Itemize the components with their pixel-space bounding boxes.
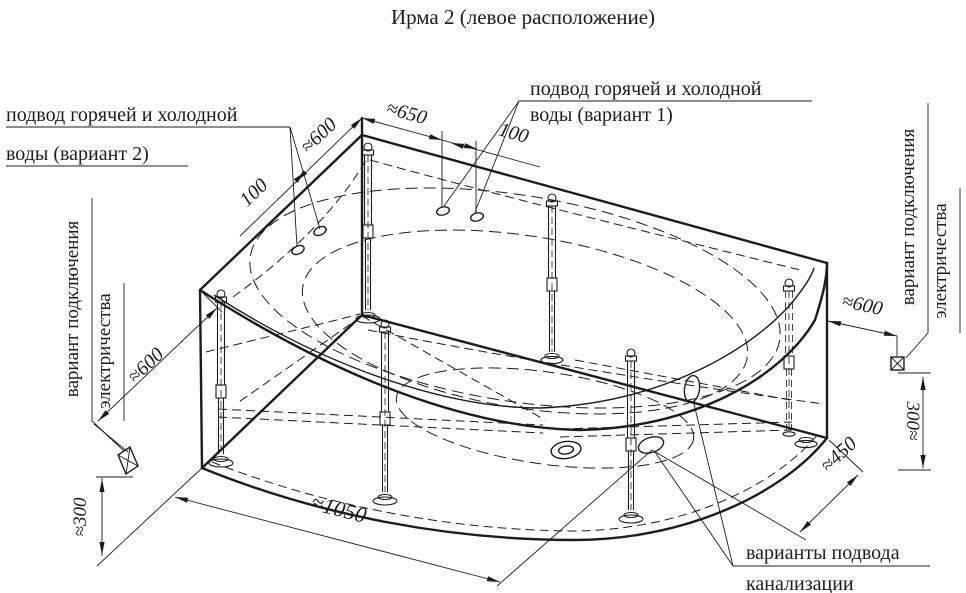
bathtub-technical-drawing: Ирма 2 (левое расположение) подвод горяч… xyxy=(0,0,966,593)
label-sewer-line1: варианты подвода xyxy=(746,542,900,564)
leg xyxy=(373,320,397,505)
dim-right-electric-offset: ≈600 xyxy=(840,290,885,320)
dim-left-holes-spacing: 100 xyxy=(235,174,272,211)
label-electric-left-line1: вариант подключения xyxy=(62,220,83,397)
label-water-variant1-line1: подвод горячей и холодной xyxy=(530,78,762,100)
dim-sewer-offset: ≈450 xyxy=(816,433,861,477)
dim-right-holes-offset: ≈650 xyxy=(384,97,429,129)
label-electric-right-line1: вариант подключения xyxy=(898,128,919,305)
label-sewer-line2: канализации xyxy=(746,573,854,593)
dim-front-width: ≈1050 xyxy=(309,490,370,528)
dim-left-electric-height: ≈300 xyxy=(70,497,91,536)
label-electric-right-line2: электричества xyxy=(930,203,951,319)
electrical-outlet-symbol-right xyxy=(891,357,904,370)
label-water-variant2-line1: подвод горячей и холодной xyxy=(6,104,238,126)
label-electric-left-line2: электричества xyxy=(94,293,115,409)
page-title: Ирма 2 (левое расположение) xyxy=(391,5,655,29)
label-water-variant1-line2: воды (вариант 1) xyxy=(530,104,673,126)
label-water-variant2-line2: воды (вариант 2) xyxy=(6,143,149,165)
dim-left-holes-offset: ≈600 xyxy=(296,114,341,158)
leg xyxy=(356,143,380,323)
leg xyxy=(541,194,563,364)
drawing-sheet: Ирма 2 (левое расположение) подвод горяч… xyxy=(0,0,966,593)
dim-left-electric-offset: ≈600 xyxy=(123,344,168,388)
adjustable-legs xyxy=(209,143,817,523)
electrical-outlet-symbol-left xyxy=(118,447,138,474)
label-leaders xyxy=(6,101,960,566)
drain-outlet xyxy=(550,439,582,460)
bathtub-outline xyxy=(200,118,827,540)
dimension-lines xyxy=(94,118,931,586)
dim-right-holes-spacing: 100 xyxy=(496,119,531,148)
dim-right-electric-height: 300≈ xyxy=(902,401,923,442)
